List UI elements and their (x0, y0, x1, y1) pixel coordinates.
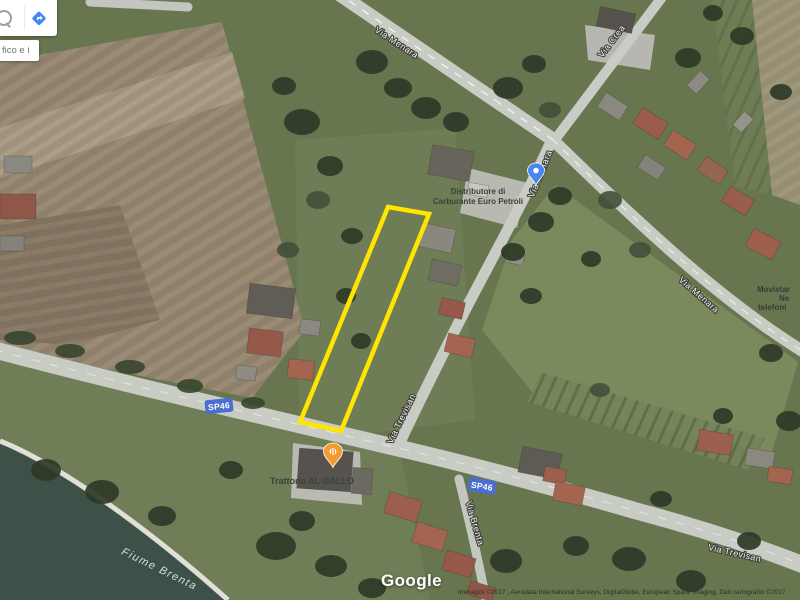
phone-shop-line3[interactable]: telefoni (758, 303, 786, 312)
phone-shop-line2[interactable]: Ne (779, 294, 790, 303)
phone-shop-line1[interactable]: Movistar (757, 285, 790, 294)
directions-icon[interactable] (30, 9, 48, 27)
map-viewport[interactable]: SP46 SP46 Via Menara Via Menara Via Mena… (0, 0, 800, 600)
restaurant-label[interactable]: Trattoria AL GALLO (270, 476, 354, 486)
satellite-map[interactable]: SP46 SP46 Via Menara Via Menara Via Mena… (0, 0, 800, 600)
sp46-shield-west: SP46 (204, 398, 233, 415)
layer-chip-label: fico e i (0, 45, 29, 56)
search-box-partial[interactable] (0, 0, 57, 36)
fuel-station-label-line2[interactable]: Carburante Euro Petroli (433, 197, 523, 206)
google-logo[interactable]: Google (381, 571, 442, 591)
pin-dot (533, 168, 539, 174)
search-icon[interactable] (0, 10, 12, 26)
traffic-layer-chip-partial[interactable]: fico e i (0, 40, 39, 61)
map-copyright: Immagini ©2017 , Aerodata International … (458, 589, 800, 596)
fork-knife-icon (330, 448, 337, 455)
divider (24, 6, 25, 30)
fuel-station-label-line1[interactable]: Distributore di (451, 187, 506, 196)
